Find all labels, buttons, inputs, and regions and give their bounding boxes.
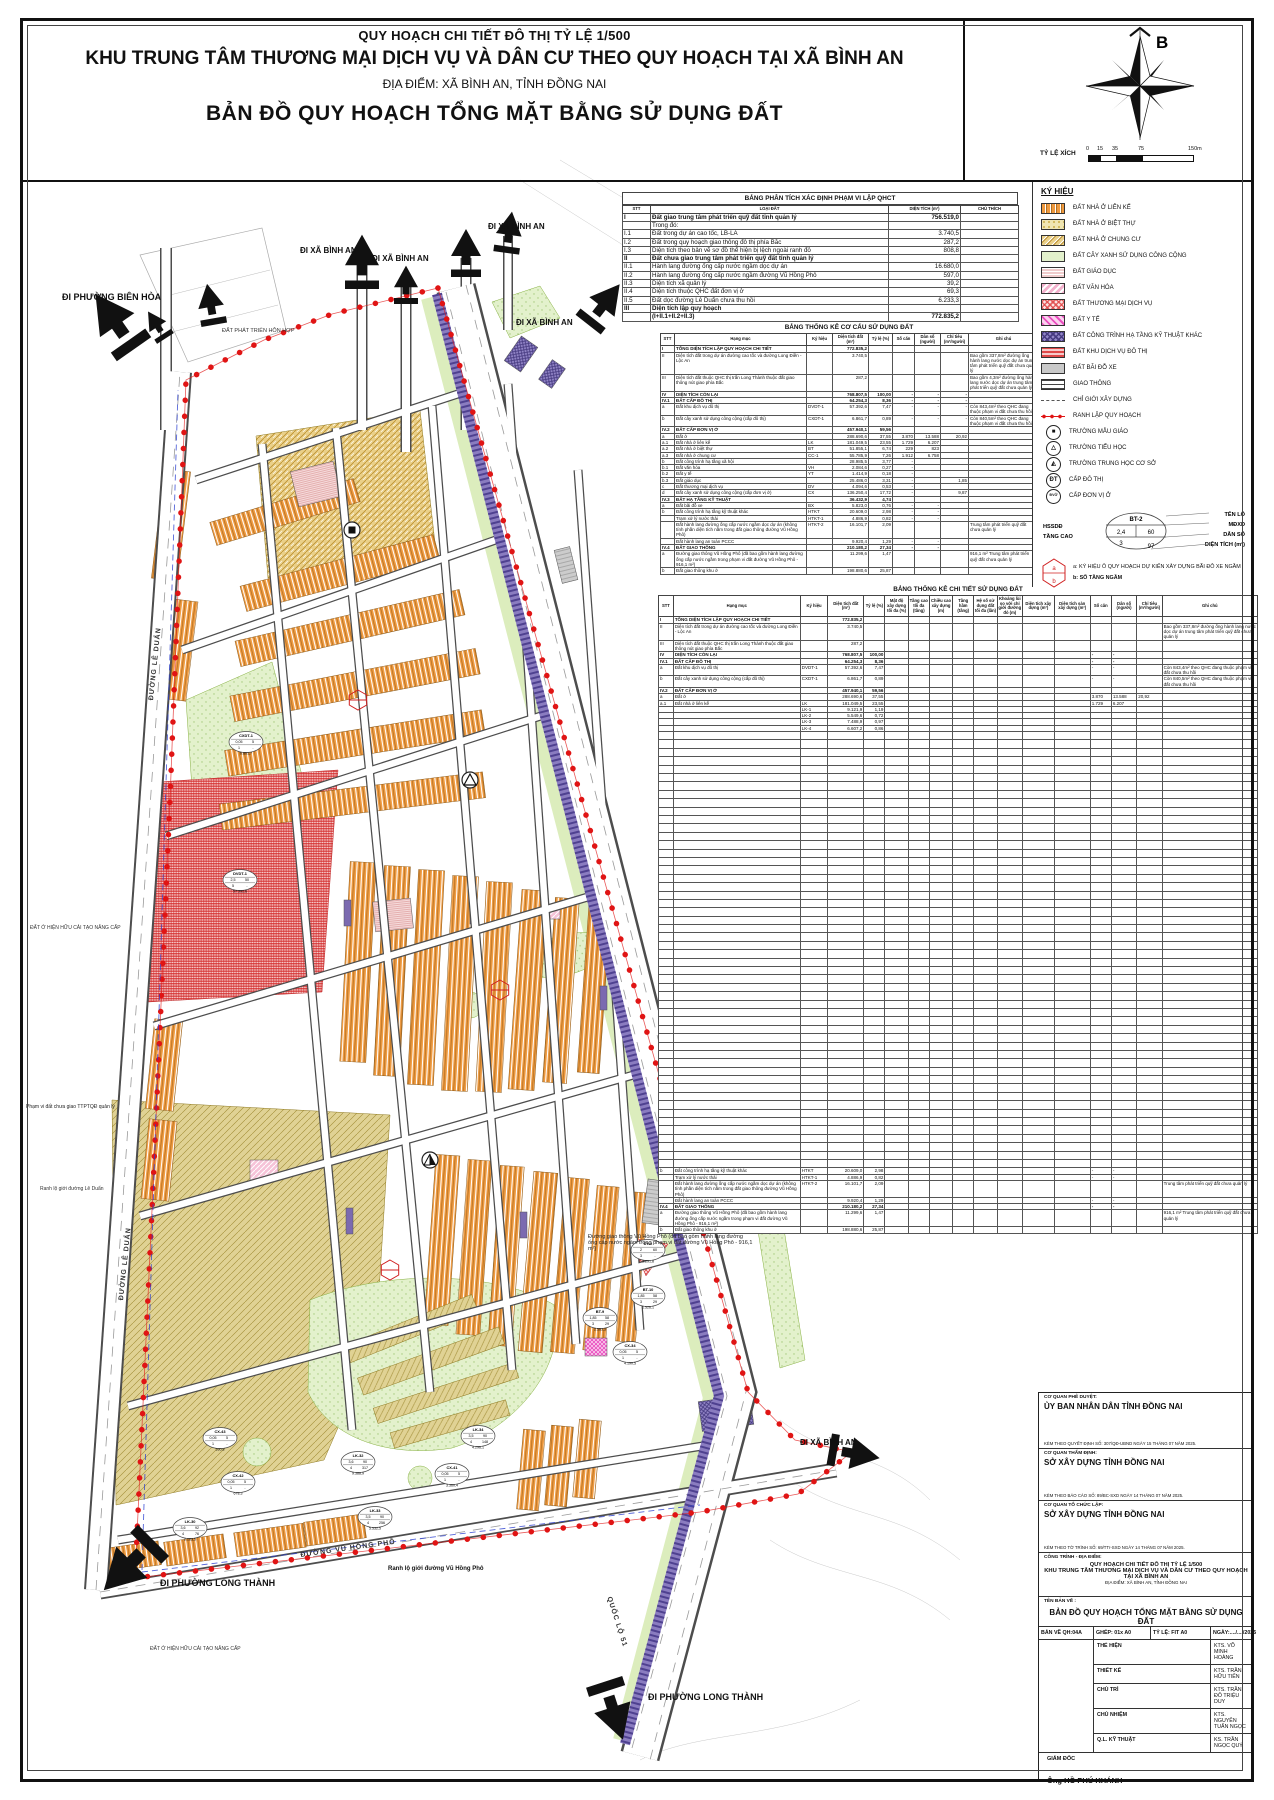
map-label: ĐI PHƯỜNG BIÊN HÒA — [62, 292, 161, 302]
north-compass: B — [1078, 26, 1208, 144]
svg-text:DÂN SỐ: DÂN SỐ — [1223, 531, 1245, 538]
svg-text:0,05: 0,05 — [236, 740, 243, 744]
data-table: STTLOẠI ĐẤTDIỆN TÍCH (m²)CHÚ THÍCHIĐất g… — [622, 205, 1019, 322]
lot-badge-CX-42: CX-420,0551-678,3 — [221, 1472, 255, 1496]
legend-label: ĐẤT NHÀ Ở BIỆT THỰ — [1073, 221, 1136, 227]
titleblock-credits: THỂ HIỆNKTS. VÕ MINH HOÀNG THIẾT KẾKTS. … — [1039, 1640, 1253, 1753]
legend-item-cx: ĐẤT CÂY XANH SỬ DỤNG CÔNG CỘNG — [1041, 248, 1254, 264]
svg-text:1: 1 — [230, 1486, 232, 1490]
construction-setback-line — [142, 1505, 700, 1572]
lot-badge-LK-32: LK-323,69043179.388,9 — [341, 1452, 375, 1476]
svg-text:LK-33: LK-33 — [370, 1508, 382, 1513]
legend-item-bt: ĐẤT NHÀ Ở BIỆT THỰ — [1041, 216, 1254, 232]
map-label: Ranh lộ giới đường Vũ Hồng Phô — [388, 1566, 484, 1572]
svg-text:5.532,5: 5.532,5 — [369, 1527, 381, 1531]
svg-text:5: 5 — [226, 1436, 228, 1440]
legend-label: CẤP ĐÔ THỊ — [1069, 477, 1103, 483]
svg-text:1,85: 1,85 — [638, 1294, 645, 1298]
svg-text:0,05: 0,05 — [210, 1436, 217, 1440]
legend-label: ĐẤT THƯƠNG MẠI DỊCH VỤ — [1073, 301, 1152, 307]
organizer-note: KÈM THEO TỜ TRÌNH SỐ: 69/TTr-SXD NGÀY 14… — [1044, 1545, 1185, 1550]
svg-text:60: 60 — [1148, 530, 1155, 536]
svg-text:50: 50 — [245, 878, 249, 882]
approver-name: ỦY BAN NHÂN DÂN TỈNH ĐỒNG NAI — [1044, 1402, 1248, 1411]
table-row: II.5Đất dọc đường Lê Duẩn chưa thu hồi6.… — [623, 296, 1019, 304]
svg-text:92: 92 — [195, 1526, 199, 1530]
director-title: GIÁM ĐỐC — [1047, 1756, 1245, 1762]
legend-label: ĐẤT CÂY XANH SỬ DỤNG CÔNG CỘNG — [1073, 253, 1187, 259]
reviewer-label: CƠ QUAN THẨM ĐỊNH: — [1044, 1451, 1248, 1456]
legend-item-ranh: RANH LẬP QUY HOẠCH — [1041, 408, 1254, 424]
scalebar-tick: 35 — [1112, 146, 1118, 152]
table-row: IIDiện tích đất trong dự án đường cao tố… — [659, 623, 1258, 640]
legend-title: KÝ HIỆU — [1041, 187, 1254, 196]
legend-label: TRƯỜNG MẪU GIÁO — [1069, 429, 1128, 435]
svg-text:678,3: 678,3 — [234, 1492, 243, 1496]
sheet-scale: TỶ LỆ: FIT A0 — [1151, 1627, 1211, 1639]
table-row: Đất hành lang đường ống cấp nước ngầm dọ… — [659, 1180, 1258, 1197]
svg-text:58: 58 — [605, 1316, 609, 1320]
legend-label: ĐẤT GIÁO DỤC — [1073, 269, 1116, 275]
svg-text:2,5: 2,5 — [231, 878, 236, 882]
legend-label: ĐẤT NHÀ Ở CHUNG CƯ — [1073, 237, 1141, 243]
legend-item-cgxd: CHỈ GIỚI XÂY DỰNG — [1041, 392, 1254, 408]
landuse-structure-table: BẢNG THỐNG KÊ CƠ CẤU SỬ DỤNG ĐẤT STTHạng… — [660, 322, 1038, 575]
svg-text:90: 90 — [363, 1460, 367, 1464]
svg-text:3: 3 — [640, 1300, 642, 1304]
scalebar-tick: 150m — [1188, 146, 1202, 152]
landuse-detail-table: BẢNG THỐNG KÊ CHI TIẾT SỬ DỤNG ĐẤT STTHạ… — [658, 584, 1258, 1234]
plan-sheet: CXDT-10,0551-6.861,7DVDT-12,5505-57.392,… — [0, 0, 1274, 1800]
signature-cell — [1039, 1640, 1094, 1753]
legend-item-cc: ĐẤT NHÀ Ở CHUNG CƯ — [1041, 232, 1254, 248]
legend-item-capdt: ĐTCẤP ĐÔ THỊ — [1041, 472, 1254, 488]
svg-text:4.296,1: 4.296,1 — [472, 1446, 484, 1450]
drawing-title: BẢN ĐỒ QUY HOẠCH TỔNG MẶT BẰNG SỬ DỤNG Đ… — [32, 102, 957, 126]
svg-text:5: 5 — [232, 884, 234, 888]
arrow-binh-an-2 — [394, 266, 418, 304]
lot-badge-LK-34: LK-343,59041484.296,1 — [461, 1426, 495, 1450]
capdvo-icon: ĐVỞ — [1046, 489, 1061, 504]
svg-text:57.392,6: 57.392,6 — [233, 890, 247, 894]
director-section: GIÁM ĐỐC Ông HỒ PHÚ KHÁNH — [1039, 1753, 1253, 1800]
approver-label: CƠ QUAN PHÊ DUYỆT: — [1044, 1395, 1248, 1400]
svg-text:1: 1 — [238, 746, 240, 750]
table-row: IIIDiện tích đất thuộc QHC thị trấn Long… — [659, 640, 1258, 652]
table2-title: BẢNG THỐNG KÊ CƠ CẤU SỬ DỤNG ĐẤT — [660, 322, 1038, 333]
scalebar-label: TỶ LỆ XÍCH — [1040, 150, 1076, 157]
project-line2: KHU TRUNG TÂM THƯƠNG MẠI DỊCH VỤ VÀ DÂN … — [1044, 1568, 1248, 1580]
map-label: ĐI XÃ BÌNH AN — [372, 254, 429, 263]
swatch-bt — [1041, 219, 1065, 230]
svg-text:CX-34: CX-34 — [624, 1343, 636, 1348]
svg-text:90: 90 — [380, 1515, 384, 1519]
header-underline — [20, 180, 1254, 182]
table1-title: BẢNG PHÂN TÍCH XÁC ĐỊNH PHẠM VI LẬP QHCT — [622, 192, 1018, 205]
table-row: bĐất cây xanh sử dụng công cộng (cấp đô … — [659, 676, 1258, 688]
legend-item-th: △TRƯỜNG TIỂU HỌC — [1041, 440, 1254, 456]
map-label: ĐI PHƯỜNG LONG THÀNH — [160, 1578, 275, 1588]
svg-text:a: a — [1052, 566, 1056, 572]
svg-text:DVDT-1: DVDT-1 — [233, 871, 248, 876]
svg-text:BT-9: BT-9 — [596, 1309, 605, 1314]
svg-text:2.563,3: 2.563,3 — [594, 1328, 606, 1332]
secondary-school-icon — [422, 1152, 438, 1168]
svg-text:LK-30: LK-30 — [185, 1519, 196, 1524]
swatch-lk — [1041, 203, 1065, 214]
scalebar-ticks: 0 15 35 75 150m — [1088, 146, 1238, 154]
table-row: II.3Diện tích xã quản lý39,2 — [623, 280, 1019, 288]
mg-icon: ■ — [1046, 425, 1061, 440]
approval-block: CƠ QUAN PHÊ DUYỆT: ỦY BAN NHÂN DÂN TỈNH … — [1038, 1392, 1254, 1780]
legend-item-dvdt: ĐẤT KHU DỊCH VỤ ĐÔ THỊ — [1041, 344, 1254, 360]
table-row: I.3Diện tích theo bản vẽ sơ đồ thể hiện … — [623, 246, 1019, 254]
approver-note: KÈM THEO QUYẾT ĐỊNH SỐ: 307/QĐ-UBND NGÀY… — [1044, 1441, 1196, 1446]
table-row: bĐất giao thông khu ở198.880,625,87 — [659, 1227, 1258, 1233]
map-label: ĐI PHƯỜNG LONG THÀNH — [648, 1692, 763, 1702]
table-row: (I+II.1+II.2+II.3)772.835,2 — [623, 313, 1019, 321]
map-label: ĐẤT Ở HIỆN HỮU CẢI TẠO NÂNG CẤP — [150, 1646, 241, 1652]
svg-text:0,05: 0,05 — [228, 1480, 235, 1484]
compass-rose-icon — [1086, 28, 1194, 140]
svg-text:256: 256 — [379, 1521, 385, 1525]
map-label: ĐI XÃ BÌNH AN — [516, 318, 573, 327]
thcs-icon: ◭ — [1046, 457, 1061, 472]
svg-text:29: 29 — [605, 1322, 609, 1326]
legend-panel: KÝ HIỆU ĐẤT NHÀ Ở LIÊN KẾĐẤT NHÀ Ở BIỆT … — [1032, 181, 1254, 587]
svg-text:2.183,5: 2.183,5 — [184, 1538, 196, 1542]
scalebar-tick: 75 — [1138, 146, 1144, 152]
svg-text:3: 3 — [592, 1322, 594, 1326]
svg-text:CX-43: CX-43 — [214, 1429, 226, 1434]
table-row: Đất hành lang đường ống cấp nước ngầm dọ… — [661, 521, 1039, 538]
svg-text:1: 1 — [622, 1356, 624, 1360]
svg-text:CXDT-1: CXDT-1 — [239, 733, 254, 738]
legend-label: GIAO THÔNG — [1073, 381, 1111, 387]
svg-text:1: 1 — [444, 1478, 446, 1482]
svg-text:76: 76 — [195, 1532, 199, 1536]
svg-text:BT-10: BT-10 — [643, 1287, 654, 1292]
table-row: IIĐất chưa giao trung tâm phát triển quỹ… — [623, 255, 1019, 263]
svg-text:TÊN LÔ: TÊN LÔ — [1224, 510, 1245, 518]
svg-text:5: 5 — [636, 1350, 638, 1354]
svg-text:3,6: 3,6 — [181, 1526, 186, 1530]
arrow-binh-an-3 — [493, 210, 525, 255]
legend-label: TRƯỜNG TIỂU HỌC — [1069, 445, 1127, 451]
swatch-htkt — [1041, 331, 1065, 342]
location-subtitle: ĐỊA ĐIỂM: XÃ BÌNH AN, TỈNH ĐỒNG NAI — [32, 77, 957, 91]
legend-item-tm: ĐẤT THƯƠNG MẠI DỊCH VỤ — [1041, 296, 1254, 312]
project-title: KHU TRUNG TÂM THƯƠNG MẠI DỊCH VỤ VÀ DÂN … — [32, 48, 957, 70]
table-row: aĐất khu dịch vụ đô thịDVDT-157.392,67,4… — [659, 664, 1258, 676]
svg-text:MĐXD: MĐXD — [1229, 522, 1245, 528]
scalebar-tick: 15 — [1097, 146, 1103, 152]
svg-text:4.190,5: 4.190,5 — [624, 1362, 636, 1366]
svg-text:4: 4 — [350, 1466, 352, 1470]
kindergarten-icon — [344, 522, 360, 538]
project-line3: ĐỊA ĐIỂM: XÃ BÌNH AN, TỈNH ĐỒNG NAI — [1044, 1580, 1248, 1585]
svg-text:HSSDĐ: HSSDĐ — [1043, 524, 1063, 530]
svg-text:3,5: 3,5 — [366, 1515, 371, 1519]
swatch-cx — [1041, 251, 1065, 262]
legend-label: ĐẤT NHÀ Ở LIÊN KẾ — [1073, 205, 1131, 211]
legend-hex-note: a b a: KÝ HIỆU Ô QUY HOẠCH DỰ KIẾN XÂY D… — [1041, 558, 1254, 588]
svg-text:5: 5 — [252, 740, 254, 744]
swatch-gt — [1041, 379, 1065, 390]
svg-text:4: 4 — [182, 1532, 184, 1536]
svg-text:0,05: 0,05 — [620, 1350, 627, 1354]
scalebar — [1088, 155, 1194, 162]
hexagon-icon: a b — [1041, 558, 1067, 588]
svg-text:b: b — [1052, 579, 1056, 585]
svg-text:CX-41: CX-41 — [446, 1465, 458, 1470]
director-name: Ông HỒ PHÚ KHÁNH — [1047, 1776, 1245, 1785]
legend-label: ĐẤT CÔNG TRÌNH HẠ TẦNG KỸ THUẬT KHÁC — [1073, 333, 1202, 339]
legend-label: CẤP ĐƠN VỊ Ở — [1069, 493, 1111, 499]
legend-label: ĐẤT VĂN HÓA — [1073, 285, 1114, 291]
legend-lot-label-diagram: BT-2 2,4 60 3 97 HSSDĐ TẦNG CAO TÊN LÔ M… — [1041, 508, 1254, 552]
sheet-date: NGÀY:..../..../2025 — [1211, 1627, 1252, 1639]
table-row: Trong đó: — [623, 221, 1019, 229]
table-row: IIIDiện tích lập quy hoạch — [623, 305, 1019, 313]
svg-text:148: 148 — [482, 1440, 488, 1444]
table-row: IIDiện tích đất trong dự án đường cao tố… — [661, 352, 1039, 374]
legend-item-lk: ĐẤT NHÀ Ở LIÊN KẾ — [1041, 200, 1254, 216]
legend-item-yt: ĐẤT Y TẾ — [1041, 312, 1254, 328]
table-row: II.1Hành lang đường ống cấp nước ngầm dọ… — [623, 263, 1019, 271]
reviewer-note: KÈM THEO BÁO CÁO SỐ: 89/BC-SXD NGÀY 14 T… — [1044, 1493, 1183, 1498]
capdt-icon: ĐT — [1046, 473, 1061, 488]
svg-text:3,5: 3,5 — [469, 1434, 474, 1438]
svg-text:3: 3 — [640, 1254, 642, 1258]
legend-label: RANH LẬP QUY HOẠCH — [1073, 413, 1141, 419]
map-label: ĐẤT Ở HIỆN HỮU CẢI TẠO NÂNG CẤP — [30, 925, 121, 931]
title-block: QUY HOẠCH CHI TIẾT ĐÔ THỊ TỶ LỆ 1/500 KH… — [32, 28, 957, 126]
svg-text:5: 5 — [244, 1480, 246, 1484]
svg-text:317: 317 — [362, 1466, 368, 1470]
table-row: I.2Đất trong quy hoạch giao thông đô thị… — [623, 238, 1019, 246]
legend-item-mg: ■TRƯỜNG MẪU GIÁO — [1041, 424, 1254, 440]
svg-text:9.388,9: 9.388,9 — [352, 1472, 364, 1476]
swatch-cgxd — [1041, 400, 1065, 401]
primary-school-icon — [462, 772, 478, 788]
sheet-layout: GHÉP: 01x A0 — [1094, 1627, 1151, 1639]
svg-text:3,6: 3,6 — [349, 1460, 354, 1464]
header-divider — [963, 18, 965, 181]
swatch-dvdt — [1041, 347, 1065, 358]
svg-text:29: 29 — [653, 1300, 657, 1304]
map-label: ĐI XÃ BÌNH AN — [300, 246, 357, 255]
sheet-number: BẢN VẼ QH:04A — [1039, 1627, 1094, 1639]
legend-label: CHỈ GIỚI XÂY DỰNG — [1073, 397, 1132, 403]
table-row: IIIDiện tích đất thuộc QHC thị trấn Long… — [661, 374, 1039, 391]
table-row: I.1Đất trong dự án cao tốc, LB-LA3.740,5 — [623, 230, 1019, 238]
reviewer-name: SỞ XÂY DỰNG TỈNH ĐỒNG NAI — [1044, 1458, 1248, 1467]
svg-text:530,8: 530,8 — [216, 1448, 225, 1452]
legend-item-bx: ĐẤT BÃI ĐỖ XE — [1041, 360, 1254, 376]
hex-note-a: a: KÝ HIỆU Ô QUY HOẠCH DỰ KIẾN XÂY DỰNG … — [1073, 562, 1241, 573]
legend-item-thcs: ◭TRƯỜNG TRUNG HỌC CƠ SỞ — [1041, 456, 1254, 472]
table-row: aĐất khu dịch vụ đô thịDVDT-157.392,67,4… — [661, 404, 1039, 416]
scope-analysis-table: BẢNG PHÂN TÍCH XÁC ĐỊNH PHẠM VI LẬP QHCT… — [622, 192, 1018, 322]
table-row: bĐất cây xanh sử dụng công cộng (cấp đô … — [661, 415, 1039, 427]
legend-label: ĐẤT BÃI ĐỖ XE — [1073, 365, 1117, 371]
table-row: II.2Hành lang đường ống cấp nước ngầm đư… — [623, 271, 1019, 279]
hex-note-b: b: SỐ TẦNG NGẦM — [1073, 573, 1241, 584]
svg-text:LK-32: LK-32 — [353, 1453, 365, 1458]
table-row: bĐất giao thông khu ở198.880,625,87 — [661, 568, 1039, 574]
swatch-tm — [1041, 299, 1065, 310]
map-label: ĐI XÃ BÌNH AN — [800, 1438, 857, 1447]
legend-label: ĐẤT KHU DỊCH VỤ ĐÔ THỊ — [1073, 349, 1147, 355]
table-row: aĐường giao thông Vũ Hồng Phô (đã bao gồ… — [661, 551, 1039, 568]
drawing-label: TÊN BẢN VẼ : — [1044, 1599, 1248, 1604]
svg-text:LK-34: LK-34 — [473, 1427, 485, 1432]
data-table: STTHạng mụcKý hiệuDiện tích đất (m²)Tỷ l… — [658, 595, 1258, 1234]
th-icon: △ — [1046, 441, 1061, 456]
legend-item-capdvo: ĐVỞCẤP ĐƠN VỊ Ở — [1041, 488, 1254, 504]
plan-type-title: QUY HOẠCH CHI TIẾT ĐÔ THỊ TỶ LỆ 1/500 — [32, 28, 957, 43]
lot-badge-CX-34: CX-340,0551-4.190,5 — [613, 1342, 647, 1366]
legend-items: ĐẤT NHÀ Ở LIÊN KẾĐẤT NHÀ Ở BIỆT THỰĐẤT N… — [1041, 200, 1254, 504]
legend-item-htkt: ĐẤT CÔNG TRÌNH HẠ TẦNG KỸ THUẬT KHÁC — [1041, 328, 1254, 344]
svg-text:1,85: 1,85 — [590, 1316, 597, 1320]
htkt-parcel — [539, 360, 566, 389]
legend-item-vh: ĐẤT VĂN HÓA — [1041, 280, 1254, 296]
table-row: II.4Diện tích thuộc QHC đất đơn vị ở69,3 — [623, 288, 1019, 296]
map-label: ĐI XÃ BÌNH AN — [488, 222, 545, 231]
htkt-parcel — [504, 336, 538, 372]
svg-text:58: 58 — [653, 1294, 657, 1298]
map-label: Ranh lộ giới đường Lê Duẩn — [40, 1186, 104, 1192]
svg-text:6.861,7: 6.861,7 — [240, 752, 252, 756]
titleblock-row0: BẢN VẼ QH:04A GHÉP: 01x A0 TỶ LỆ: FIT A0… — [1039, 1627, 1253, 1640]
organizer-name: SỞ XÂY DỰNG TỈNH ĐỒNG NAI — [1044, 1510, 1248, 1519]
table-row: IĐất giao trung tâm phát triển quỹ đất t… — [623, 213, 1019, 221]
svg-text:CX-42: CX-42 — [232, 1473, 244, 1478]
svg-text:3.360,4: 3.360,4 — [446, 1484, 458, 1488]
north-letter: B — [1156, 33, 1168, 52]
legend-label: TRƯỜNG TRUNG HỌC CƠ SỞ — [1069, 461, 1156, 467]
swatch-gd — [1041, 267, 1065, 278]
drawing-name: BẢN ĐỒ QUY HOẠCH TỔNG MẶT BẰNG SỬ DỤNG Đ… — [1044, 1608, 1248, 1626]
swatch-ranh — [1041, 414, 1065, 419]
svg-text:1.291,8: 1.291,8 — [642, 1260, 654, 1264]
bx-parking-parcel — [554, 547, 578, 584]
svg-text:2,4: 2,4 — [1117, 530, 1126, 536]
legend-item-gd: ĐẤT GIÁO DỤC — [1041, 264, 1254, 280]
project-label: CÔNG TRÌNH - ĐỊA ĐIỂM: — [1044, 1555, 1248, 1560]
svg-text:4: 4 — [470, 1440, 472, 1444]
yt-health-parcel — [585, 1338, 607, 1356]
swatch-bx — [1041, 363, 1065, 374]
organizer-label: CƠ QUAN TỔ CHỨC LẬP: — [1044, 1503, 1248, 1508]
legend-item-gt: GIAO THÔNG — [1041, 376, 1254, 392]
svg-text:1.526,1: 1.526,1 — [642, 1306, 654, 1310]
svg-text:5: 5 — [458, 1472, 460, 1476]
svg-text:1: 1 — [212, 1442, 214, 1446]
legend-label: ĐẤT Y TẾ — [1073, 317, 1100, 323]
svg-text:TẦNG CAO: TẦNG CAO — [1043, 533, 1073, 540]
map-annotation: Đường giao thông Vũ Hồng Phô (đã bao gồm… — [588, 1234, 753, 1252]
svg-text:DIỆN TÍCH (m²): DIỆN TÍCH (m²) — [1205, 540, 1245, 548]
swatch-yt — [1041, 315, 1065, 326]
swatch-vh — [1041, 283, 1065, 294]
data-table: STTHạng mụcKý hiệuDiện tích đất (m²)Tỷ l… — [660, 333, 1039, 575]
swatch-cc — [1041, 235, 1065, 246]
svg-text:0,05: 0,05 — [442, 1472, 449, 1476]
scalebar-tick: 0 — [1086, 146, 1089, 152]
table-row: aĐường giao thông Vũ Hồng Phô (đã bao gồ… — [659, 1210, 1258, 1227]
svg-text:90: 90 — [483, 1434, 487, 1438]
map-label: ĐẤT PHÁT TRIỂN HỖN HỢP — [222, 328, 295, 334]
svg-text:BT-2: BT-2 — [1129, 517, 1143, 523]
svg-text:4: 4 — [367, 1521, 369, 1525]
map-annotation: Phạm vi đất chưa giao TTPTQĐ quản lý — [26, 1104, 118, 1110]
